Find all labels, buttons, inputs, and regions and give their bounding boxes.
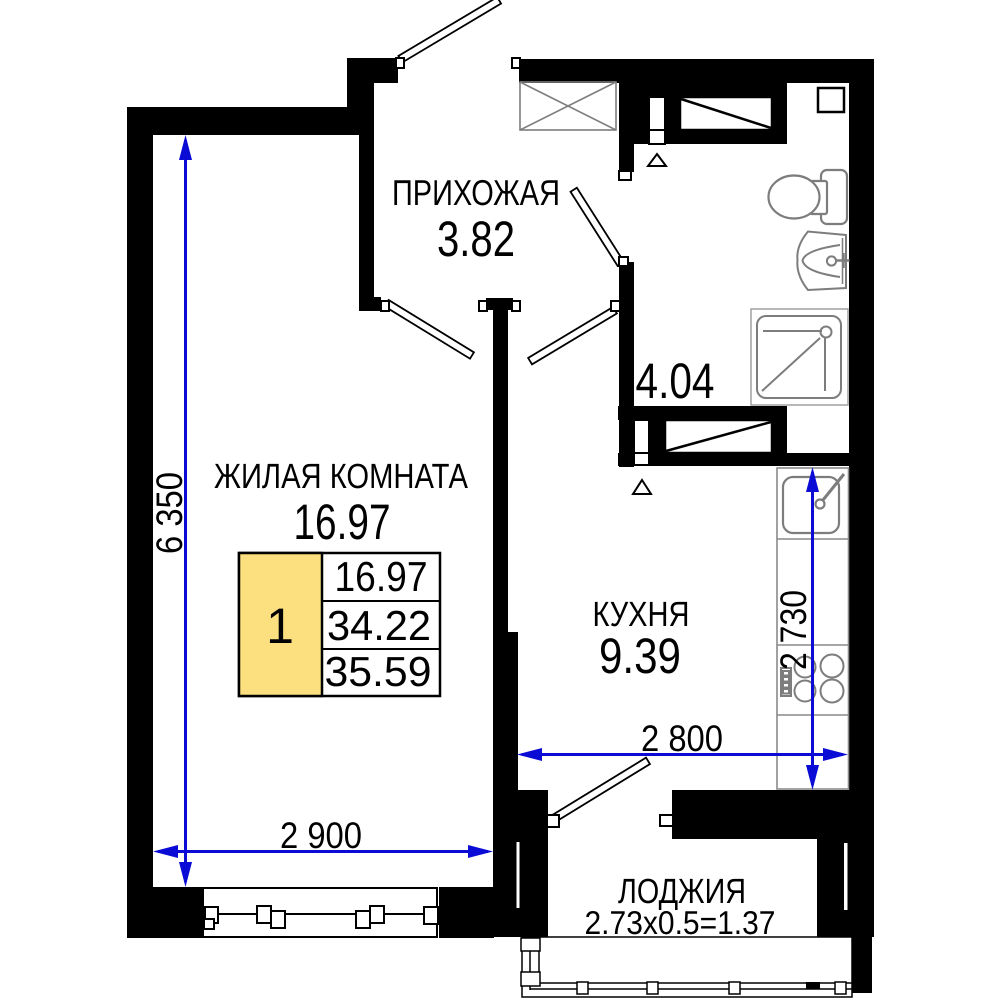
svg-text:2.73x0.5=1.37: 2.73x0.5=1.37 <box>585 904 776 941</box>
svg-text:4.04: 4.04 <box>636 353 715 409</box>
svg-text:2 800: 2 800 <box>641 718 723 759</box>
svg-text:ЖИЛАЯ КОМНАТА: ЖИЛАЯ КОМНАТА <box>214 457 469 496</box>
svg-text:9.39: 9.39 <box>599 628 681 684</box>
svg-text:2 900: 2 900 <box>280 815 362 856</box>
svg-text:16.97: 16.97 <box>335 553 428 600</box>
svg-text:1: 1 <box>266 598 294 654</box>
svg-text:2 730: 2 730 <box>773 590 814 670</box>
svg-text:35.59: 35.59 <box>325 648 432 695</box>
svg-text:ПРИХОЖАЯ: ПРИХОЖАЯ <box>392 172 560 213</box>
svg-text:34.22: 34.22 <box>327 602 431 649</box>
svg-text:3.82: 3.82 <box>437 211 515 267</box>
svg-text:16.97: 16.97 <box>294 494 391 550</box>
svg-text:6 350: 6 350 <box>149 472 190 554</box>
